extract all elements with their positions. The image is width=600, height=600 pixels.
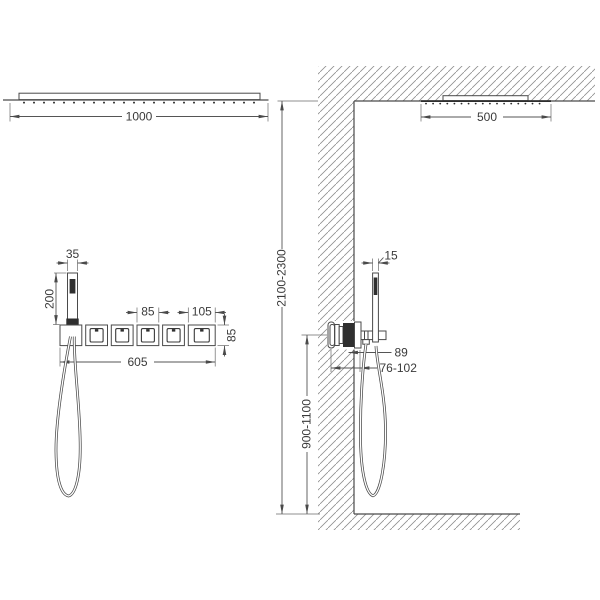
front-view: 1000 35 200 [3,93,269,496]
dim-handshower-width-35: 35 [57,247,89,271]
dim-label-200: 200 [43,289,57,309]
handshower-side-sprayface [374,278,378,296]
dim-label-2100-2300: 2100-2300 [275,249,289,307]
dim-label-15: 15 [384,249,398,263]
dim-handshower-depth-15: 15 [362,249,398,272]
dim-module-width-85: 85 [126,305,170,323]
dim-head-depth-500: 500 [421,104,551,124]
shower-head-side-plate [421,100,551,102]
side-view: 500 2100-2300 900-1100 [275,66,596,530]
shower-installation-drawing: 1000 35 200 [0,0,600,600]
dim-label-85-height: 85 [225,328,239,342]
valve-cartridge-block [343,323,355,347]
shower-head-front [19,93,260,99]
dim-head-width-1000: 1000 [10,103,268,124]
wall-section-hatch [318,66,595,530]
valve-trim-front [60,325,215,346]
handshower-front-sprayface [70,279,76,294]
dim-label-500: 500 [477,110,497,124]
dim-module-height-85: 85 [218,314,239,357]
handshower-side [373,273,379,342]
dim-label-1000: 1000 [126,110,153,124]
shower-head-front-nozzles [23,102,255,104]
dim-label-605: 605 [127,355,147,369]
dim-label-85-width: 85 [141,305,155,319]
hose-front [56,337,80,497]
dim-label-89: 89 [395,346,409,360]
hose-outlet-fitting [363,340,370,345]
dim-ceiling-height-range: 2100-2300 [275,101,321,514]
dim-trim-width-605: 605 [60,348,215,370]
dim-label-35: 35 [66,247,80,261]
dim-label-105: 105 [192,305,212,319]
shower-head-side-body [443,96,528,101]
shower-head-side-nozzles [425,103,540,105]
dim-handshower-height-200: 200 [43,273,67,325]
valve-trim-plate-side [355,322,362,348]
installation-diagram-svg: 1000 35 200 [0,0,600,600]
dim-end-module-width-105: 105 [178,305,227,323]
dim-label-76-102: 76-102 [380,361,418,375]
holder-module [60,325,82,346]
dim-label-900-1100: 900-1100 [300,399,314,449]
